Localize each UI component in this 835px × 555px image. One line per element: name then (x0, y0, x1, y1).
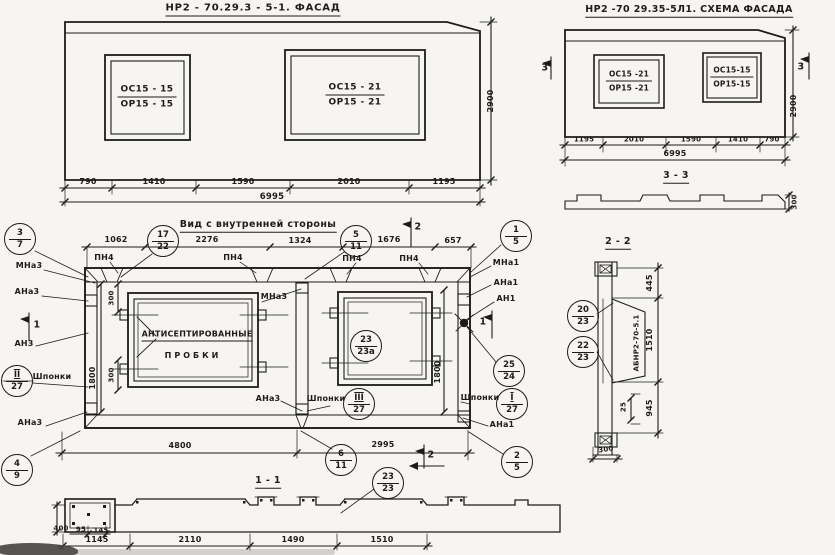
dim-label: 1195 (574, 137, 594, 144)
anchor-label-ana3: АНа3 (15, 288, 40, 296)
plug-note-line2: ПРОБКИ (165, 352, 222, 360)
dim-height: 2900 (790, 94, 798, 117)
drawing-sheet: НР2 - 70.29.3 - 5-1. ФАСАД ОС15 - 15 ОР1… (0, 0, 835, 555)
dim-label: 1510 (370, 536, 393, 544)
callout-bottom: 22 (157, 242, 169, 252)
part-mark-vertical: АБНР2-70-5.1 (634, 315, 641, 372)
window-mark-top: ОС15 - 15 (118, 85, 177, 98)
dim-label: 2276 (195, 236, 218, 244)
anchor-label-mna3: МНа3 (16, 262, 42, 270)
window-mark-top: ОС15 -21 (606, 70, 652, 82)
callout-bottom: 23 (577, 317, 589, 327)
section-flag-3-left: 3 (541, 63, 548, 73)
window-mark-os15-21: ОС15 - 21 ОР15 - 21 (326, 83, 385, 108)
callout-top: 20 (572, 306, 595, 317)
dim-label: 1324 (288, 237, 311, 245)
callout-bottom: 11 (350, 242, 362, 252)
dim-label: 790 (79, 178, 96, 186)
callout-17-22: 17 22 (147, 225, 179, 257)
window-mark-top: ОС15-15 (710, 66, 753, 78)
callout-bottom: 27 (11, 382, 23, 392)
callout-3-7: 3 7 (4, 223, 36, 255)
window-mark-bottom: ОР15-15 (710, 78, 753, 89)
dim-25: 25 (621, 402, 628, 412)
callout-bottom: 7 (17, 240, 23, 250)
section-flag-2-top: 2 (414, 222, 421, 232)
dim-145: 145 (93, 528, 108, 535)
dim-label: 1510 (646, 328, 654, 351)
pn4-label: ПН4 (399, 255, 419, 263)
callout-bottom: 23 (577, 353, 589, 363)
dim-total: 6995 (260, 193, 284, 202)
callout-22-23: 22 23 (567, 336, 599, 368)
callout-top: 4 (6, 460, 29, 471)
callout-II-27: II 27 (1, 365, 33, 397)
dim-95: 95 (76, 527, 86, 534)
callout-bottom: 27 (506, 405, 518, 415)
callout-bottom: 5 (513, 237, 519, 247)
dim-label: 2110 (178, 536, 201, 544)
anchor-label-mna3: МНа3 (261, 293, 287, 301)
dim-label: 1145 (85, 536, 108, 544)
callout-top: 17 (152, 231, 175, 242)
dim-total: 6995 (663, 150, 686, 158)
anchor-label-ana3: АНа3 (256, 395, 281, 403)
callout-top: 23 (355, 336, 378, 347)
dim-label: 790 (764, 137, 779, 144)
callout-20-23: 20 23 (567, 300, 599, 332)
pn4-label: ПН4 (223, 254, 243, 262)
facade-left-title: НР2 - 70.29.3 - 5-1. ФАСАД (165, 4, 340, 17)
pn4-label: ПН4 (94, 254, 114, 262)
dim-label: 4800 (168, 442, 191, 450)
dim-400: 400 (53, 526, 68, 533)
scan-streak (0, 549, 335, 555)
dim-label: 1195 (432, 178, 455, 186)
section-flag-2-bottom: 2 (427, 450, 434, 460)
callout-bottom: 23а (357, 347, 375, 357)
callout-top: II (6, 371, 29, 382)
dim-label: 445 (646, 274, 654, 291)
callout-top: 2 (506, 452, 529, 463)
anchor-label-ana3: АНа3 (18, 419, 43, 427)
dim-label: 1590 (231, 178, 254, 186)
callout-2-5: 2 5 (501, 446, 533, 478)
dim-300: 300 (109, 290, 116, 305)
dim-label: 945 (646, 399, 654, 416)
dim-label: 657 (444, 237, 461, 245)
callout-4-9: 4 9 (1, 454, 33, 486)
window-mark-bottom: ОР15 - 15 (118, 98, 177, 110)
callout-1-5: 1 5 (500, 220, 532, 252)
callout-6-11: 6 11 (325, 444, 357, 476)
dim-height: 2900 (487, 89, 495, 112)
section-flag-1-right: 1 (479, 317, 486, 327)
shponki-label: Шпонки (461, 394, 500, 402)
callout-bottom: 24 (503, 372, 515, 382)
window-mark-os15-15: ОС15-15 ОР15-15 (710, 66, 753, 89)
callout-bottom: 27 (353, 405, 365, 415)
callout-23-23a: 23 23а (350, 330, 382, 362)
callout-bottom: 9 (14, 471, 20, 481)
anchor-label-mna1: МНа1 (493, 259, 519, 267)
callout-I-27: I 27 (496, 388, 528, 420)
callout-23-23: 23 23 (372, 467, 404, 499)
dim-thickness: 300 (792, 194, 799, 209)
inner-view-title: Вид с внутренней стороны (180, 220, 337, 233)
section-flag-1-left: 1 (33, 320, 40, 330)
dim-label: 1590 (681, 137, 701, 144)
window-mark-top: ОС15 - 21 (326, 83, 385, 96)
dim-300: 300 (109, 367, 116, 382)
shponki-label: Шпонки (307, 395, 346, 403)
window-mark-os15-15: ОС15 - 15 ОР15 - 15 (118, 85, 177, 110)
callout-top: 1 (505, 226, 528, 237)
dim-label: 2010 (624, 137, 644, 144)
section-3-3-label: 3 - 3 (663, 171, 689, 184)
window-mark-bottom: ОР15 - 21 (326, 96, 385, 108)
shponki-label: Шпонки (33, 373, 72, 381)
callout-top: 6 (330, 450, 353, 461)
dim-label: 1410 (728, 137, 748, 144)
dim-label: 2995 (371, 441, 394, 449)
dim-label: 1676 (377, 236, 400, 244)
callout-III-27: III 27 (343, 388, 375, 420)
section-flag-3-right: 3 (797, 62, 804, 72)
dim-1800: 1800 (89, 366, 97, 389)
callout-top: 5 (345, 231, 368, 242)
anchor-label-ana1: АНа1 (494, 279, 519, 287)
section-1-1-label: 1 - 1 (255, 476, 281, 489)
facade-scheme-title: НР2 -70 29.35-5Л1. СХЕМА ФАСАДА (585, 5, 793, 18)
callout-5-11: 5 11 (340, 225, 372, 257)
callout-bottom: 23 (382, 484, 394, 494)
callout-top: I (501, 394, 524, 405)
section-2-2-label: 2 - 2 (605, 237, 631, 250)
dim-label: 1490 (281, 536, 304, 544)
anchor-label-an3: АН3 (14, 340, 33, 348)
dim-label: 1410 (142, 178, 165, 186)
dim-1800: 1800 (434, 360, 442, 383)
anchor-label-an1: АН1 (496, 295, 515, 303)
callout-top: 22 (572, 342, 595, 353)
callout-bottom: 5 (514, 463, 520, 473)
callout-bottom: 11 (335, 461, 347, 471)
callout-25-24: 25 24 (493, 355, 525, 387)
callout-top: 25 (498, 361, 521, 372)
callout-top: 3 (9, 229, 32, 240)
callout-top: 23 (377, 473, 400, 484)
dim-label: 2010 (337, 178, 360, 186)
plug-note-line1: АНТИСЕПТИРОВАННЫЕ (142, 331, 253, 342)
dim-label: 1062 (104, 236, 127, 244)
anchor-label-ana1: АНа1 (490, 421, 515, 429)
window-mark-bottom: ОР15 -21 (606, 82, 652, 93)
callout-top: III (348, 394, 371, 405)
window-mark-os15-21: ОС15 -21 ОР15 -21 (606, 70, 652, 93)
